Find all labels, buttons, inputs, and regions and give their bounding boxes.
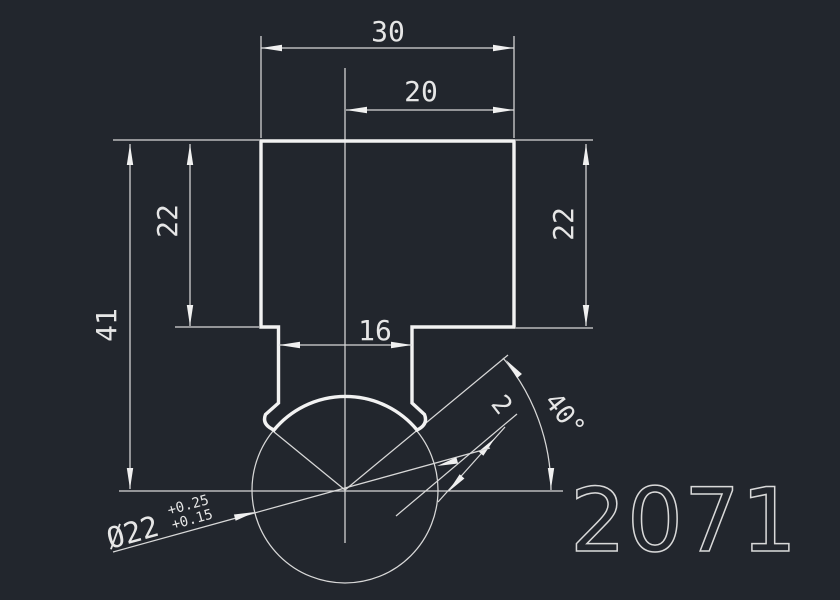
dim-height-right[interactable]: 22 — [516, 140, 593, 328]
dim-line — [113, 448, 490, 552]
centerlines[interactable] — [119, 68, 563, 543]
radius-line-140deg — [268, 427, 345, 490]
angle-arc — [503, 358, 551, 490]
dim-value: 2 — [485, 390, 518, 421]
arrowhead — [127, 144, 133, 165]
part-outline[interactable] — [261, 141, 514, 430]
dim-value: 41 — [90, 308, 123, 342]
dim-height-inner-left[interactable]: 22 — [151, 144, 259, 327]
dim-value: 22 — [151, 204, 184, 238]
arrowhead — [583, 144, 589, 165]
dim-chamfer[interactable]: 2 — [396, 390, 518, 516]
arrowhead — [234, 509, 256, 521]
arrowhead — [391, 342, 412, 348]
arrowhead — [346, 107, 367, 113]
arrowhead — [279, 342, 300, 348]
dim-value: 20 — [404, 75, 438, 108]
arrowhead — [127, 468, 133, 489]
arrowhead — [493, 107, 514, 113]
dim-value: 22 — [547, 207, 580, 241]
ext-line — [396, 414, 517, 516]
arrowhead — [583, 305, 589, 326]
arrowhead — [504, 358, 522, 378]
arrowhead — [548, 468, 554, 489]
part-number-text[interactable]: 2071 — [570, 469, 798, 572]
arrowhead — [493, 45, 514, 51]
dim-value: 16 — [358, 314, 392, 347]
dim-value: Ø22 — [103, 509, 163, 556]
dim-value: 30 — [371, 15, 405, 48]
arrowhead — [436, 457, 458, 469]
dim-width-upper-right[interactable]: 20 — [346, 75, 514, 113]
radius-lines[interactable] — [268, 355, 508, 490]
dim-diameter[interactable]: Ø22 +0.25 +0.15 — [102, 448, 490, 556]
arrowhead — [187, 144, 193, 165]
arrowhead — [261, 45, 282, 51]
cad-canvas[interactable]: 30 20 41 22 22 16 — [0, 0, 840, 600]
dim-height-outer-left[interactable]: 41 — [90, 140, 259, 489]
dim-value: 40° — [538, 387, 591, 442]
arrowhead — [187, 305, 193, 326]
dim-width-top[interactable]: 30 — [261, 15, 514, 138]
